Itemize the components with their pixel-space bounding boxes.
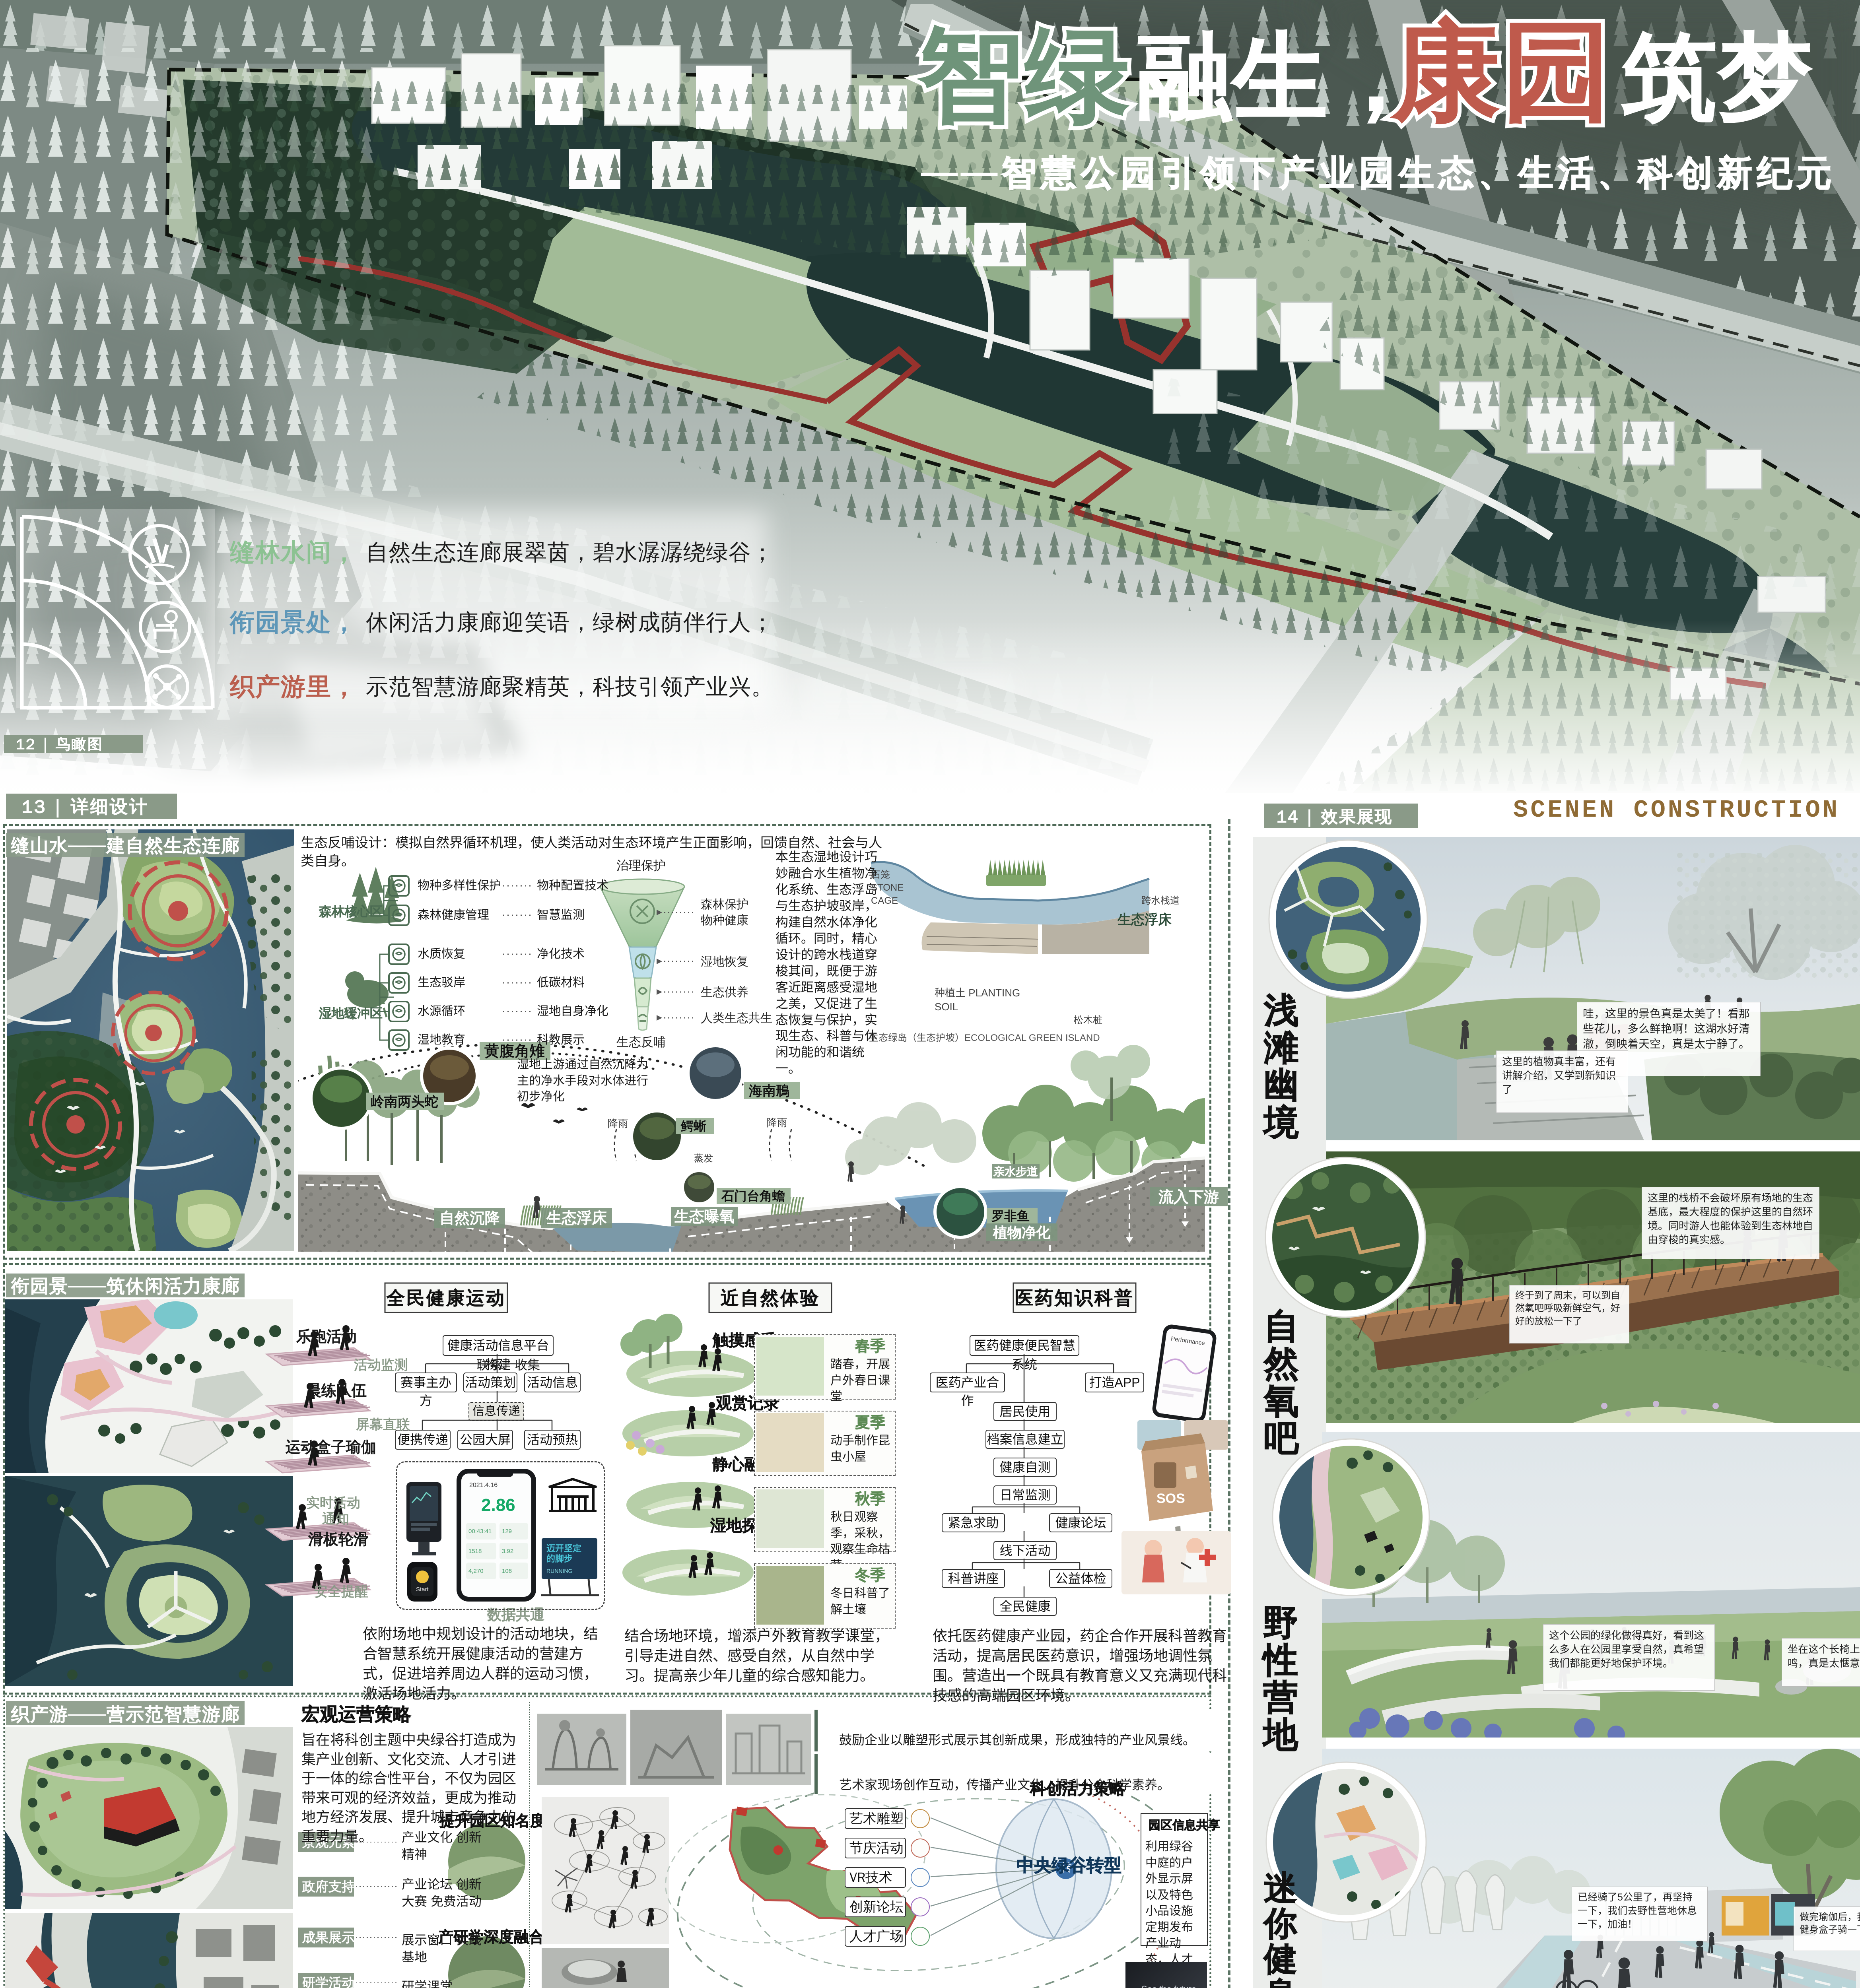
svg-text:4,270: 4,270 bbox=[468, 1568, 484, 1574]
svg-text:的脚步: 的脚步 bbox=[546, 1554, 573, 1564]
svg-text:1518: 1518 bbox=[468, 1548, 482, 1555]
svg-text:2.86: 2.86 bbox=[481, 1495, 515, 1515]
svg-text:迈开坚定: 迈开坚定 bbox=[546, 1543, 581, 1553]
svg-text:129: 129 bbox=[502, 1528, 512, 1535]
svg-text:Start: Start bbox=[416, 1586, 429, 1593]
svg-text:00:43:41: 00:43:41 bbox=[468, 1528, 492, 1535]
svg-text:RUNNING: RUNNING bbox=[546, 1568, 572, 1574]
svg-text:SOS: SOS bbox=[1156, 1491, 1185, 1506]
svg-text:2021.4.16: 2021.4.16 bbox=[469, 1482, 498, 1489]
svg-text:106: 106 bbox=[502, 1568, 512, 1574]
svg-text:3.92: 3.92 bbox=[502, 1548, 513, 1555]
